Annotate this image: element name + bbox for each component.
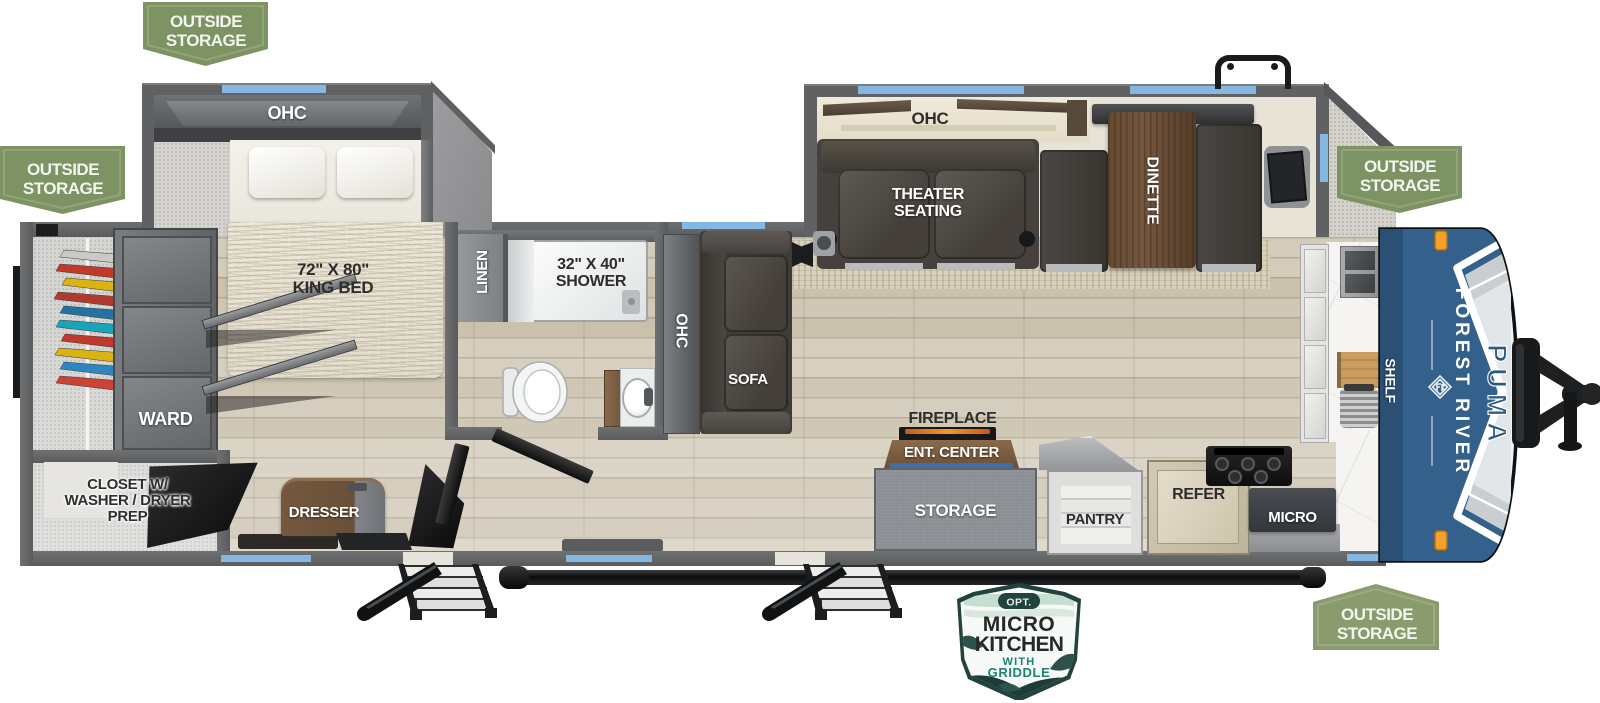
svg-text:OUTSIDE: OUTSIDE [1364,157,1436,176]
svg-text:STORAGE: STORAGE [166,31,246,50]
svg-text:FOREST RIVER: FOREST RIVER [1451,288,1472,476]
svg-text:OPT.: OPT. [1006,597,1031,609]
svg-text:OUTSIDE: OUTSIDE [1341,605,1413,624]
svg-text:STORAGE: STORAGE [1360,176,1440,195]
svg-text:KITCHEN: KITCHEN [975,633,1063,656]
svg-text:STORAGE: STORAGE [1337,624,1417,643]
svg-text:OUTSIDE: OUTSIDE [170,12,242,31]
svg-text:GRIDDLE: GRIDDLE [988,665,1051,680]
svg-text:STORAGE: STORAGE [23,179,103,198]
svg-text:OUTSIDE: OUTSIDE [27,160,99,179]
